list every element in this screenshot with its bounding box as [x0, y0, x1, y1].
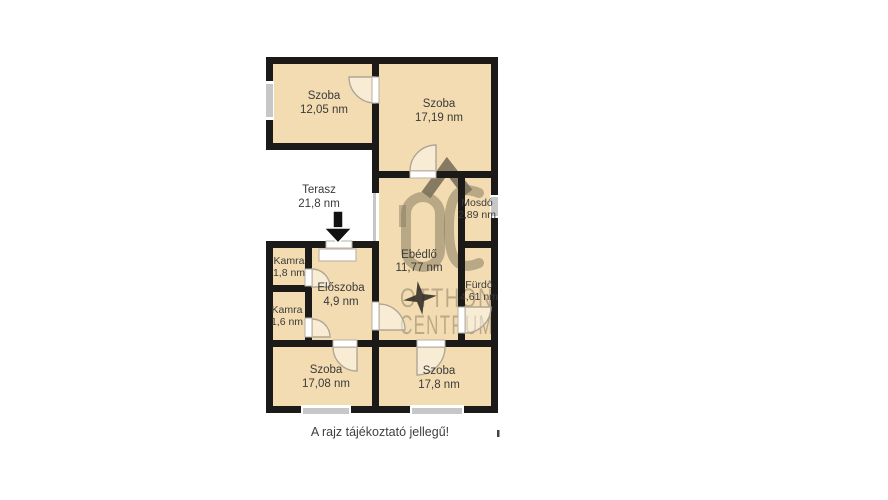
entrance-arrow-icon — [324, 211, 352, 243]
terasz-edge-line — [373, 193, 376, 242]
wall — [372, 103, 379, 193]
room-label-name: Előszoba — [317, 282, 365, 294]
room-label-area: 11,77 nm — [395, 262, 442, 274]
room-label-area: 1,6 nm — [271, 316, 303, 328]
wall — [445, 340, 498, 347]
room-label-area: 2,89 nm — [458, 209, 496, 221]
wall — [266, 241, 326, 248]
floor-plan: OTTHON CENTRUM — [0, 0, 888, 500]
door — [372, 77, 379, 103]
room-label-name: Szoba — [423, 98, 456, 110]
window — [412, 408, 462, 414]
door — [305, 269, 312, 286]
wall — [458, 171, 465, 307]
wall — [305, 337, 312, 347]
wall — [372, 241, 379, 302]
door — [410, 171, 436, 178]
entrance-arrow-shaft — [333, 211, 343, 228]
room-label-name: Kamra — [274, 255, 305, 267]
door — [333, 340, 357, 347]
floor-plan-page: OTTHON CENTRUM — [0, 0, 888, 500]
door — [372, 302, 379, 330]
wall — [357, 340, 417, 347]
room-label-area: 12,05 nm — [300, 104, 348, 116]
room-label-name: Szoba — [423, 365, 456, 377]
wall — [436, 171, 498, 178]
room-label-name: Terasz — [302, 184, 336, 196]
stray-mark — [497, 430, 500, 437]
wall — [305, 241, 312, 269]
wall — [372, 57, 379, 77]
room-label-area: 1,8 nm — [273, 267, 305, 279]
room-label-name: Szoba — [308, 90, 341, 102]
door — [417, 340, 445, 347]
wall — [266, 143, 379, 150]
wall — [372, 330, 379, 413]
wall — [266, 340, 333, 347]
window — [303, 408, 349, 414]
window — [266, 84, 273, 117]
door — [458, 307, 465, 333]
room-label-name: Ebédlő — [401, 249, 437, 261]
room-label-name: Kamra — [272, 304, 303, 316]
room-label-area: 21,8 nm — [298, 198, 340, 210]
room-label-name: Fürdő — [465, 279, 493, 291]
wall — [266, 57, 498, 64]
room-label-name: Szoba — [310, 364, 343, 376]
wall — [305, 292, 312, 318]
door — [305, 318, 312, 337]
room-label-area: 17,8 nm — [418, 379, 460, 391]
wall — [458, 333, 465, 347]
entrance-step — [319, 249, 356, 261]
wall — [491, 57, 498, 413]
disclaimer-text: A rajz tájékoztató jellegű! — [311, 425, 449, 439]
room-label-area: 4,9 nm — [323, 296, 358, 308]
room-label-area: 17,19 nm — [415, 112, 463, 124]
room-label-area: 4,61 nm — [460, 291, 498, 303]
room-label-name: Mosdó — [461, 197, 493, 209]
room-label-area: 17,08 nm — [302, 378, 350, 390]
